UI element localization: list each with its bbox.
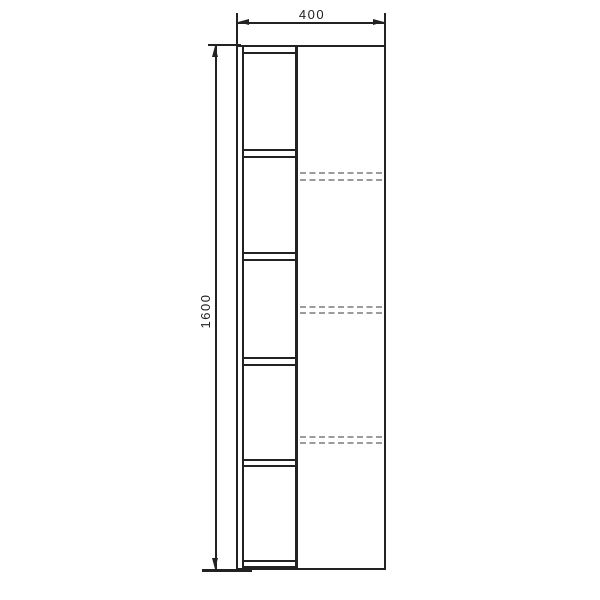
width-dimension-extension-right	[384, 13, 386, 45]
height-dimension-arrow-up-icon	[212, 46, 218, 57]
shelf-line	[244, 252, 295, 261]
shelf-line	[244, 149, 295, 158]
cabinet-left-wall-inner-line	[242, 47, 244, 568]
hidden-shelf-dashed-line	[300, 172, 382, 181]
shelf-line	[244, 560, 295, 568]
width-dimension-arrow-right-icon	[373, 19, 384, 25]
width-dimension-extension-left	[236, 13, 238, 45]
shelf-column-top-inner-line	[244, 52, 295, 54]
width-dimension-line	[238, 22, 384, 24]
technical-drawing-canvas: 400 1600	[0, 0, 600, 600]
height-dimension-arrow-down-icon	[212, 558, 218, 569]
height-dimension-line	[215, 46, 217, 569]
hidden-shelf-dashed-line	[300, 306, 382, 314]
shelf-line	[244, 357, 295, 366]
shelf-line	[244, 459, 295, 467]
height-dimension-extension-bottom	[202, 569, 252, 572]
height-dimension-label: 1600	[199, 289, 213, 333]
width-dimension-arrow-left-icon	[238, 19, 249, 25]
cabinet-divider-panel-line	[295, 47, 298, 568]
width-dimension-label: 400	[288, 8, 336, 21]
hidden-shelf-dashed-line	[300, 436, 382, 444]
